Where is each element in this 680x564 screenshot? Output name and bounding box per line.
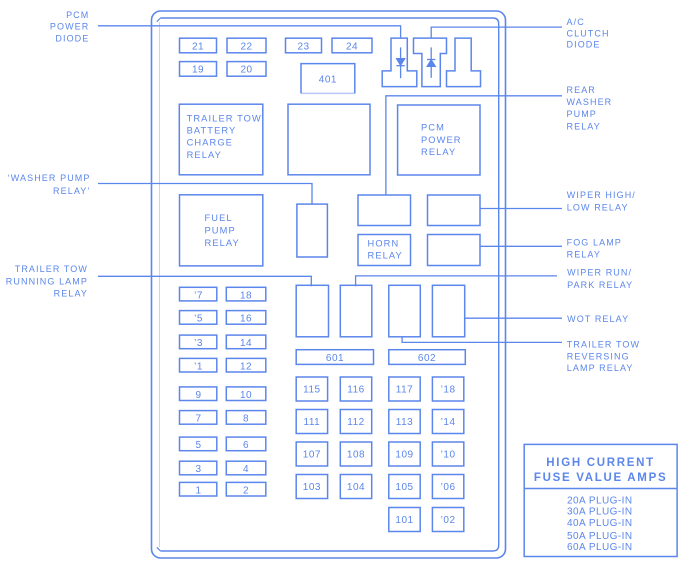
svg-text:’3: ’3 — [194, 338, 203, 349]
svg-text:WIPER HIGH/: WIPER HIGH/ — [567, 190, 636, 200]
svg-text:8: 8 — [243, 414, 249, 425]
svg-text:50A PLUG-IN: 50A PLUG-IN — [567, 531, 633, 542]
svg-text:10: 10 — [240, 390, 252, 401]
svg-text:7: 7 — [195, 414, 201, 425]
svg-text:107: 107 — [303, 450, 321, 461]
svg-text:20: 20 — [240, 65, 252, 76]
svg-text:WOT RELAY: WOT RELAY — [567, 314, 629, 324]
svg-text:POWER: POWER — [50, 22, 90, 32]
svg-text:POWER: POWER — [421, 135, 462, 145]
svg-text:16: 16 — [240, 314, 252, 325]
svg-text:9: 9 — [195, 390, 201, 401]
svg-text:24: 24 — [346, 41, 358, 52]
svg-text:’14: ’14 — [441, 417, 456, 428]
svg-text:RELAY: RELAY — [205, 238, 240, 248]
svg-text:PUMP: PUMP — [205, 226, 236, 236]
svg-text:RELAY: RELAY — [54, 289, 88, 299]
svg-text:601: 601 — [326, 353, 344, 364]
svg-text:4: 4 — [243, 464, 249, 475]
svg-text:21: 21 — [192, 41, 204, 52]
svg-text:1: 1 — [195, 485, 201, 496]
svg-text:108: 108 — [347, 450, 365, 461]
svg-text:DIODE: DIODE — [55, 33, 89, 43]
svg-text:112: 112 — [347, 417, 364, 428]
svg-text:RELAY: RELAY — [421, 147, 456, 157]
svg-text:19: 19 — [192, 65, 204, 76]
svg-text:WASHER: WASHER — [567, 97, 613, 107]
svg-text:HORN: HORN — [368, 239, 400, 249]
svg-text:103: 103 — [303, 482, 321, 493]
svg-text:CHARGE: CHARGE — [187, 138, 233, 148]
svg-text:BATTERY: BATTERY — [187, 126, 237, 136]
svg-text:RUNNING LAMP: RUNNING LAMP — [6, 276, 88, 286]
svg-text:5: 5 — [195, 440, 201, 451]
svg-text:’7: ’7 — [194, 290, 203, 301]
svg-text:401: 401 — [319, 74, 337, 85]
svg-text:105: 105 — [395, 482, 413, 493]
svg-text:FUEL: FUEL — [205, 213, 233, 223]
svg-text:113: 113 — [396, 417, 413, 428]
svg-text:HIGH CURRENT: HIGH CURRENT — [546, 457, 655, 469]
svg-text:’5: ’5 — [194, 314, 203, 325]
svg-text:CLUTCH: CLUTCH — [567, 28, 610, 38]
svg-text:20A PLUG-IN: 20A PLUG-IN — [567, 496, 633, 507]
svg-text:30A PLUG-IN: 30A PLUG-IN — [567, 507, 633, 518]
svg-text:WIPER RUN/: WIPER RUN/ — [567, 268, 632, 278]
svg-text:LOW RELAY: LOW RELAY — [567, 202, 629, 212]
svg-text:116: 116 — [347, 385, 364, 396]
svg-text:TRAILER TOW: TRAILER TOW — [567, 340, 640, 350]
svg-text:RELAY: RELAY — [567, 122, 601, 132]
svg-text:22: 22 — [240, 41, 252, 52]
svg-text:LAMP RELAY: LAMP RELAY — [567, 363, 634, 373]
svg-text:’06: ’06 — [441, 482, 456, 493]
svg-text:18: 18 — [240, 290, 252, 301]
svg-text:PCM: PCM — [421, 123, 445, 133]
svg-text:2: 2 — [243, 485, 249, 496]
svg-text:TRAILER TOW: TRAILER TOW — [187, 114, 262, 124]
svg-text:14: 14 — [240, 338, 252, 349]
svg-text:TRAILER TOW: TRAILER TOW — [15, 264, 88, 274]
svg-text:12: 12 — [240, 361, 252, 372]
svg-text:RELAY’: RELAY’ — [53, 186, 90, 196]
svg-text:FOG LAMP: FOG LAMP — [567, 238, 622, 248]
svg-text:3: 3 — [195, 464, 201, 475]
svg-text:’02: ’02 — [441, 515, 456, 526]
svg-text:602: 602 — [418, 353, 436, 364]
svg-text:115: 115 — [303, 385, 320, 396]
svg-text:REAR: REAR — [567, 85, 596, 95]
svg-text:23: 23 — [297, 41, 309, 52]
svg-text:104: 104 — [347, 482, 365, 493]
svg-text:PARK RELAY: PARK RELAY — [567, 280, 633, 290]
svg-text:RELAY: RELAY — [567, 249, 601, 259]
svg-text:117: 117 — [396, 385, 413, 396]
svg-text:DIODE: DIODE — [567, 40, 601, 50]
svg-text:‘WASHER PUMP: ‘WASHER PUMP — [8, 173, 91, 183]
svg-text:RELAY: RELAY — [368, 250, 403, 260]
svg-text:PCM: PCM — [66, 10, 89, 20]
svg-text:PUMP: PUMP — [567, 109, 597, 119]
svg-text:’10: ’10 — [441, 450, 456, 461]
svg-text:’18: ’18 — [441, 385, 456, 396]
svg-text:6: 6 — [243, 440, 249, 451]
svg-text:40A PLUG-IN: 40A PLUG-IN — [567, 518, 633, 529]
svg-text:111: 111 — [304, 417, 321, 428]
svg-text:101: 101 — [395, 515, 413, 526]
svg-text:’1: ’1 — [194, 361, 203, 372]
svg-text:FUSE VALUE AMPS: FUSE VALUE AMPS — [534, 472, 667, 484]
svg-text:REVERSING: REVERSING — [567, 351, 630, 361]
svg-text:109: 109 — [395, 450, 413, 461]
svg-text:60A PLUG-IN: 60A PLUG-IN — [567, 542, 633, 553]
svg-text:A/C: A/C — [567, 17, 585, 27]
svg-text:RELAY: RELAY — [187, 150, 222, 160]
